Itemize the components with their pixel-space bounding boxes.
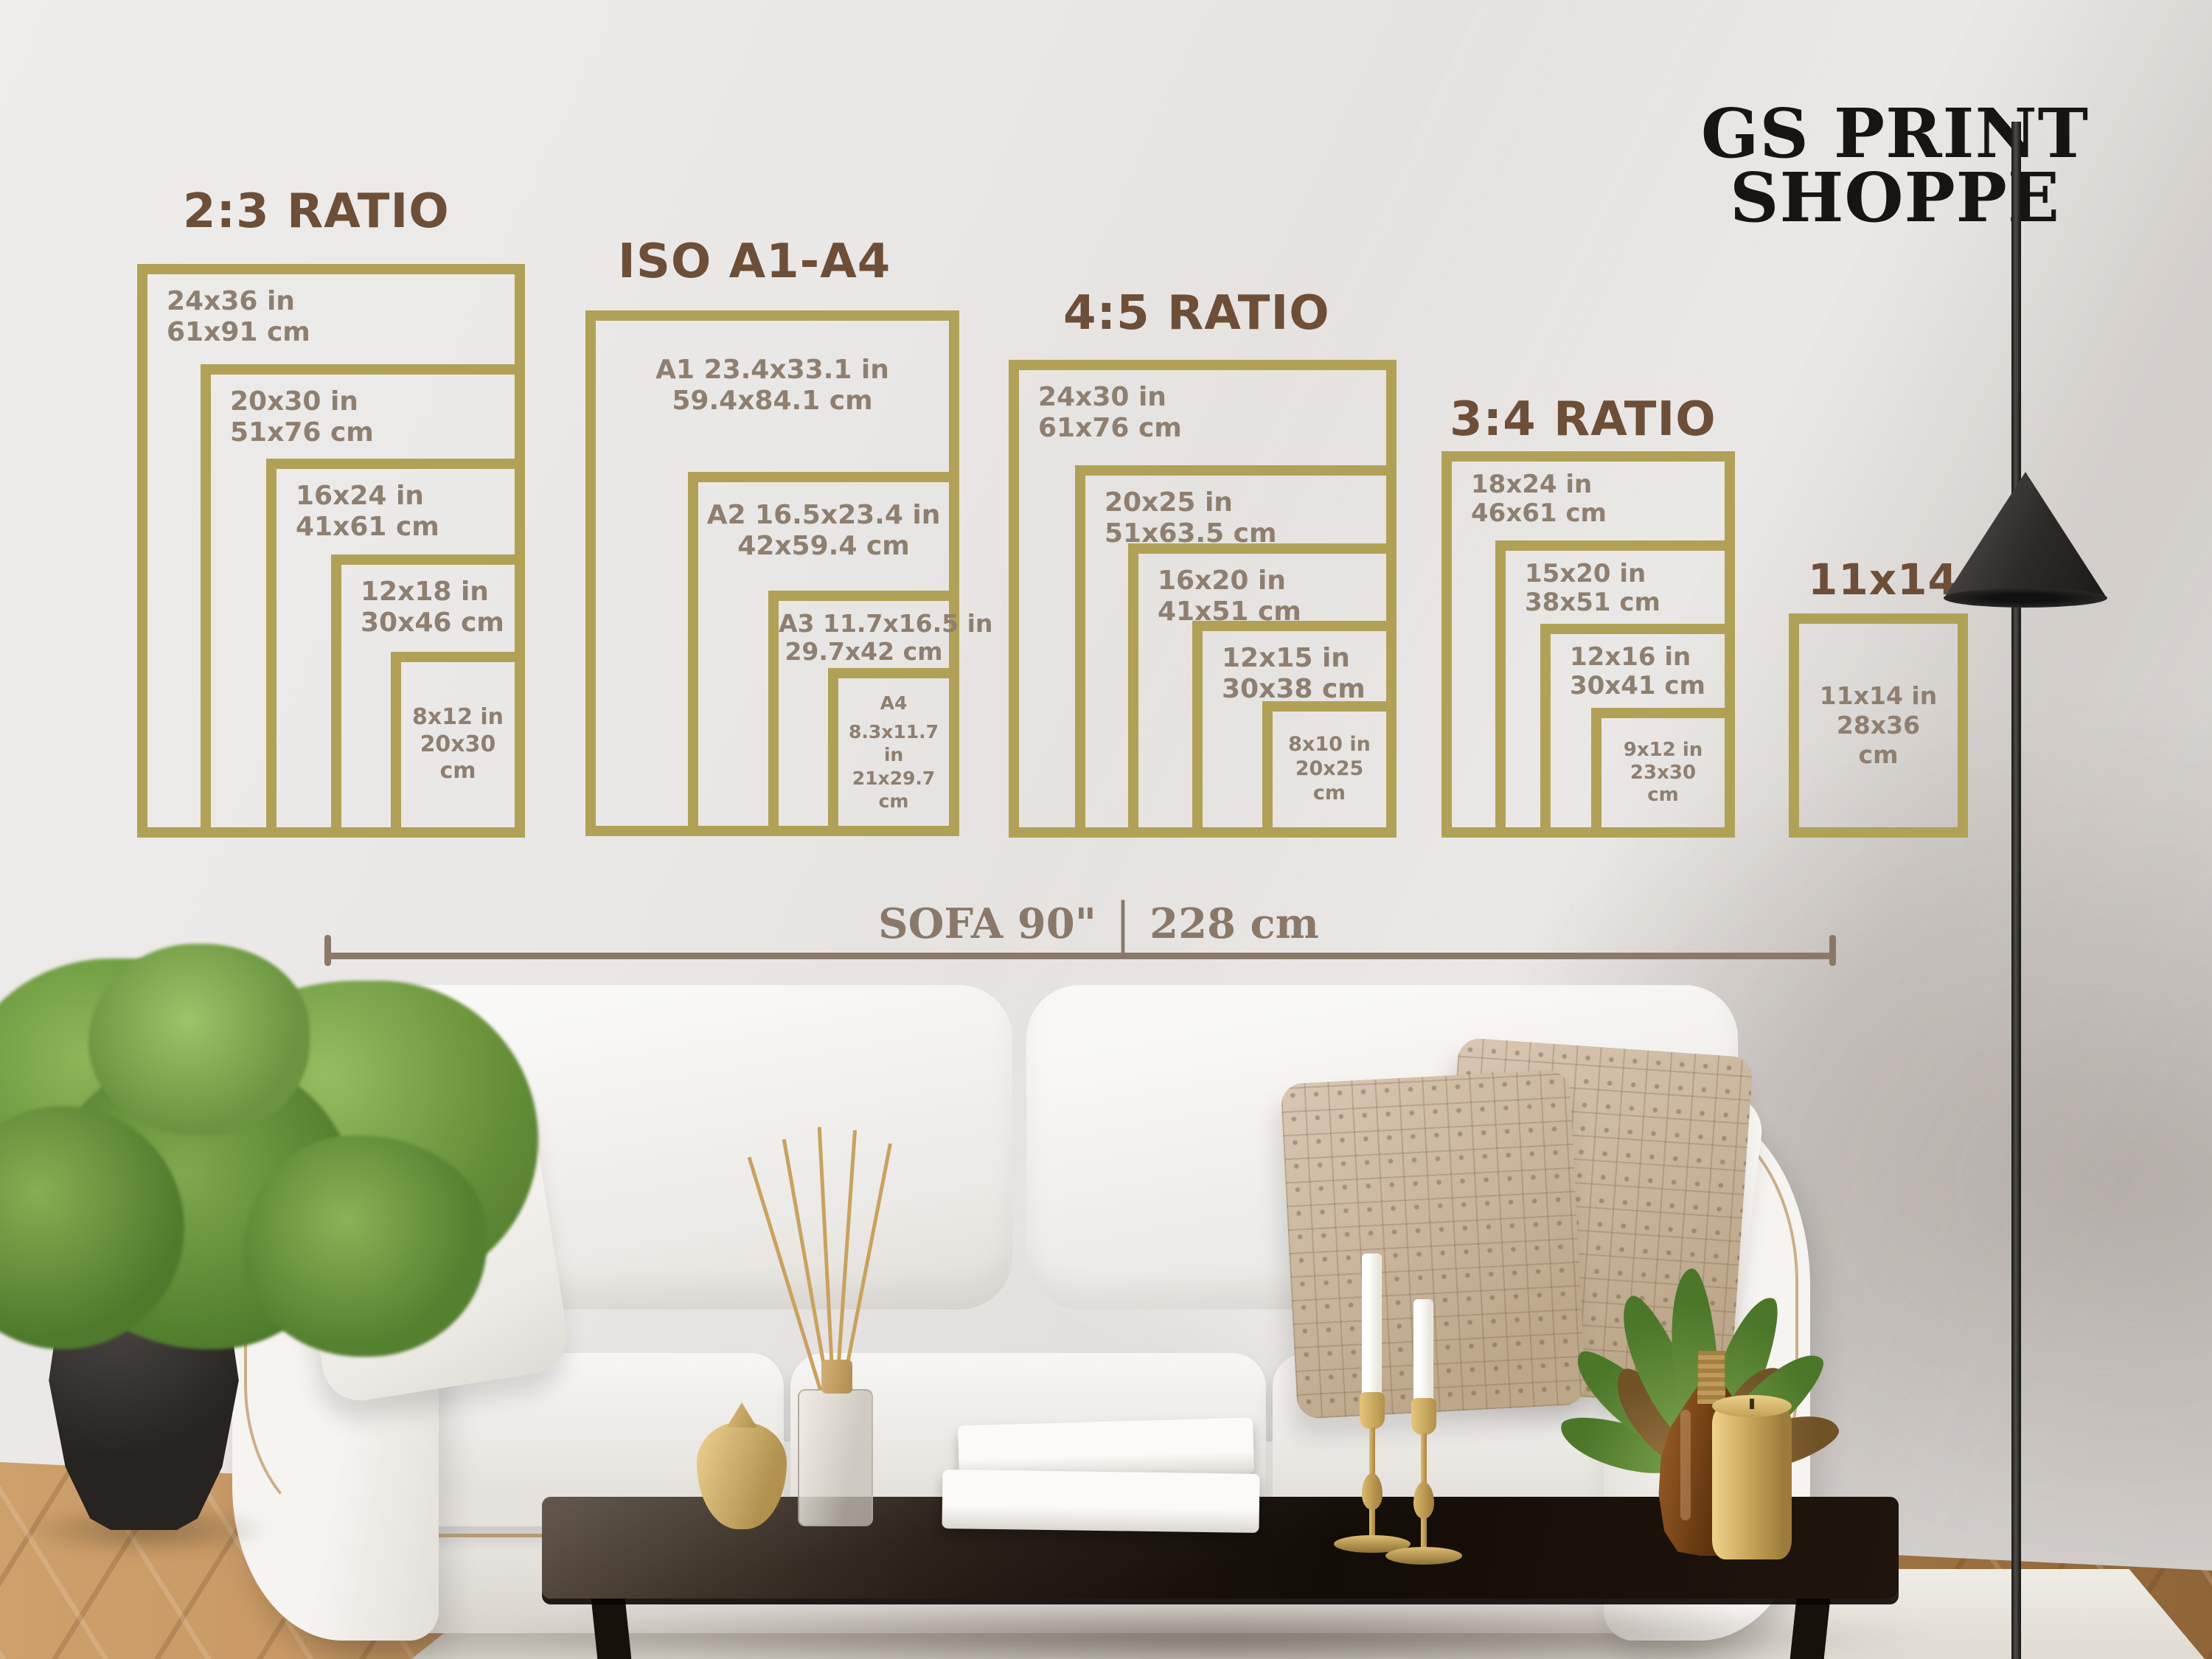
group-title-3-4-ratio: 3:4 RATIO [1450, 392, 1717, 447]
sofa-width-line [324, 953, 1836, 959]
frame-label-24x36: 24x36 in61x91 cm [167, 286, 310, 348]
candlestick-bead [1413, 1482, 1434, 1519]
frame-label-11x14: 11x14 in28x36cm [1799, 624, 1958, 827]
table-shadow [516, 1600, 1932, 1659]
taper-candle-left [1362, 1253, 1382, 1397]
candlestick-bead [1362, 1473, 1382, 1510]
frame-a4: A48.3x11.7 in21x29.7cm [828, 668, 959, 836]
poster-size-guide-scene: 2:3 RATIO 24x36 in61x91 cm 20x30 in51x76… [0, 0, 2212, 1659]
frame-label-16x20: 16x20 in41x51 cm [1158, 566, 1301, 627]
frame-label-9x12: 9x12 in23x30cm [1601, 718, 1725, 827]
brand-logo: GS PRINT SHOPPE [1681, 102, 2109, 231]
frame-11x14: 11x14 in28x36cm [1789, 613, 1968, 838]
candlestick-cup [1411, 1398, 1436, 1435]
floor-lamp-shade [1944, 472, 2107, 599]
frame-label-15x20: 15x20 in38x51 cm [1525, 560, 1660, 618]
reed-diffuser [798, 1389, 873, 1526]
frame-label-a3: A3 11.7x16.5 in29.7x42 cm [779, 610, 949, 667]
sofa-width-label: SOFA 90" | 228 cm [767, 898, 1430, 950]
sofa-width-cm: 228 cm [1150, 900, 1319, 948]
frame-label-12x15: 12x15 in30x38 cm [1222, 643, 1366, 705]
group-title-iso-a1-a4: ISO A1-A4 [618, 234, 891, 289]
frame-label-a4: A48.3x11.7 in21x29.7cm [838, 678, 949, 826]
frame-label-20x30: 20x30 in51x76 cm [230, 386, 374, 448]
frame-label-16x24: 16x24 in41x61 cm [296, 481, 439, 543]
table-leg-right [1790, 1599, 1831, 1659]
sofa-width-inches: SOFA 90" [878, 900, 1096, 948]
frame-8x12: 8x12 in20x30cm [391, 652, 525, 838]
frame-label-24x30: 24x30 in61x76 cm [1038, 382, 1182, 444]
group-title-2-3-ratio: 2:3 RATIO [183, 184, 450, 239]
frame-label-a2: A2 16.5x23.4 in42x59.4 cm [698, 500, 949, 562]
waffle-pillow-front [1280, 1069, 1586, 1419]
frame-9x12: 9x12 in23x30cm [1591, 708, 1735, 838]
gold-pillar-candle [1712, 1405, 1792, 1559]
floor-lamp-pole [2011, 122, 2021, 1659]
frame-label-a1: A1 23.4x33.1 in59.4x84.1 cm [596, 355, 949, 417]
candlestick-cup [1360, 1392, 1385, 1429]
frame-label-12x18: 12x18 in30x46 cm [361, 577, 504, 639]
group-title-4-5-ratio: 4:5 RATIO [1063, 286, 1330, 341]
brand-logo-line2: SHOPPE [1681, 166, 2109, 230]
frame-label-18x24: 18x24 in46x61 cm [1471, 470, 1607, 529]
candlestick-base [1385, 1547, 1462, 1565]
brand-logo-line1: GS PRINT [1681, 102, 2109, 166]
frame-8x10: 8x10 in20x25cm [1262, 701, 1397, 838]
group-title-11x14: 11x14 [1808, 554, 1958, 605]
frame-label-12x16: 12x16 in30x41 cm [1570, 643, 1705, 701]
frame-label-8x12: 8x12 in20x30cm [401, 662, 515, 827]
measure-divider: | [1116, 891, 1130, 956]
taper-candle-right [1413, 1299, 1433, 1402]
floor-lamp-shade-rim [1944, 588, 2107, 608]
plant-foliage [243, 1135, 487, 1357]
frame-label-20x25: 20x25 in51x63.5 cm [1105, 487, 1277, 549]
book-stack-bottom [942, 1470, 1259, 1533]
plant-foliage [88, 944, 310, 1135]
table-leg-left [591, 1599, 632, 1659]
frame-label-8x10: 8x10 in20x25cm [1273, 712, 1386, 827]
